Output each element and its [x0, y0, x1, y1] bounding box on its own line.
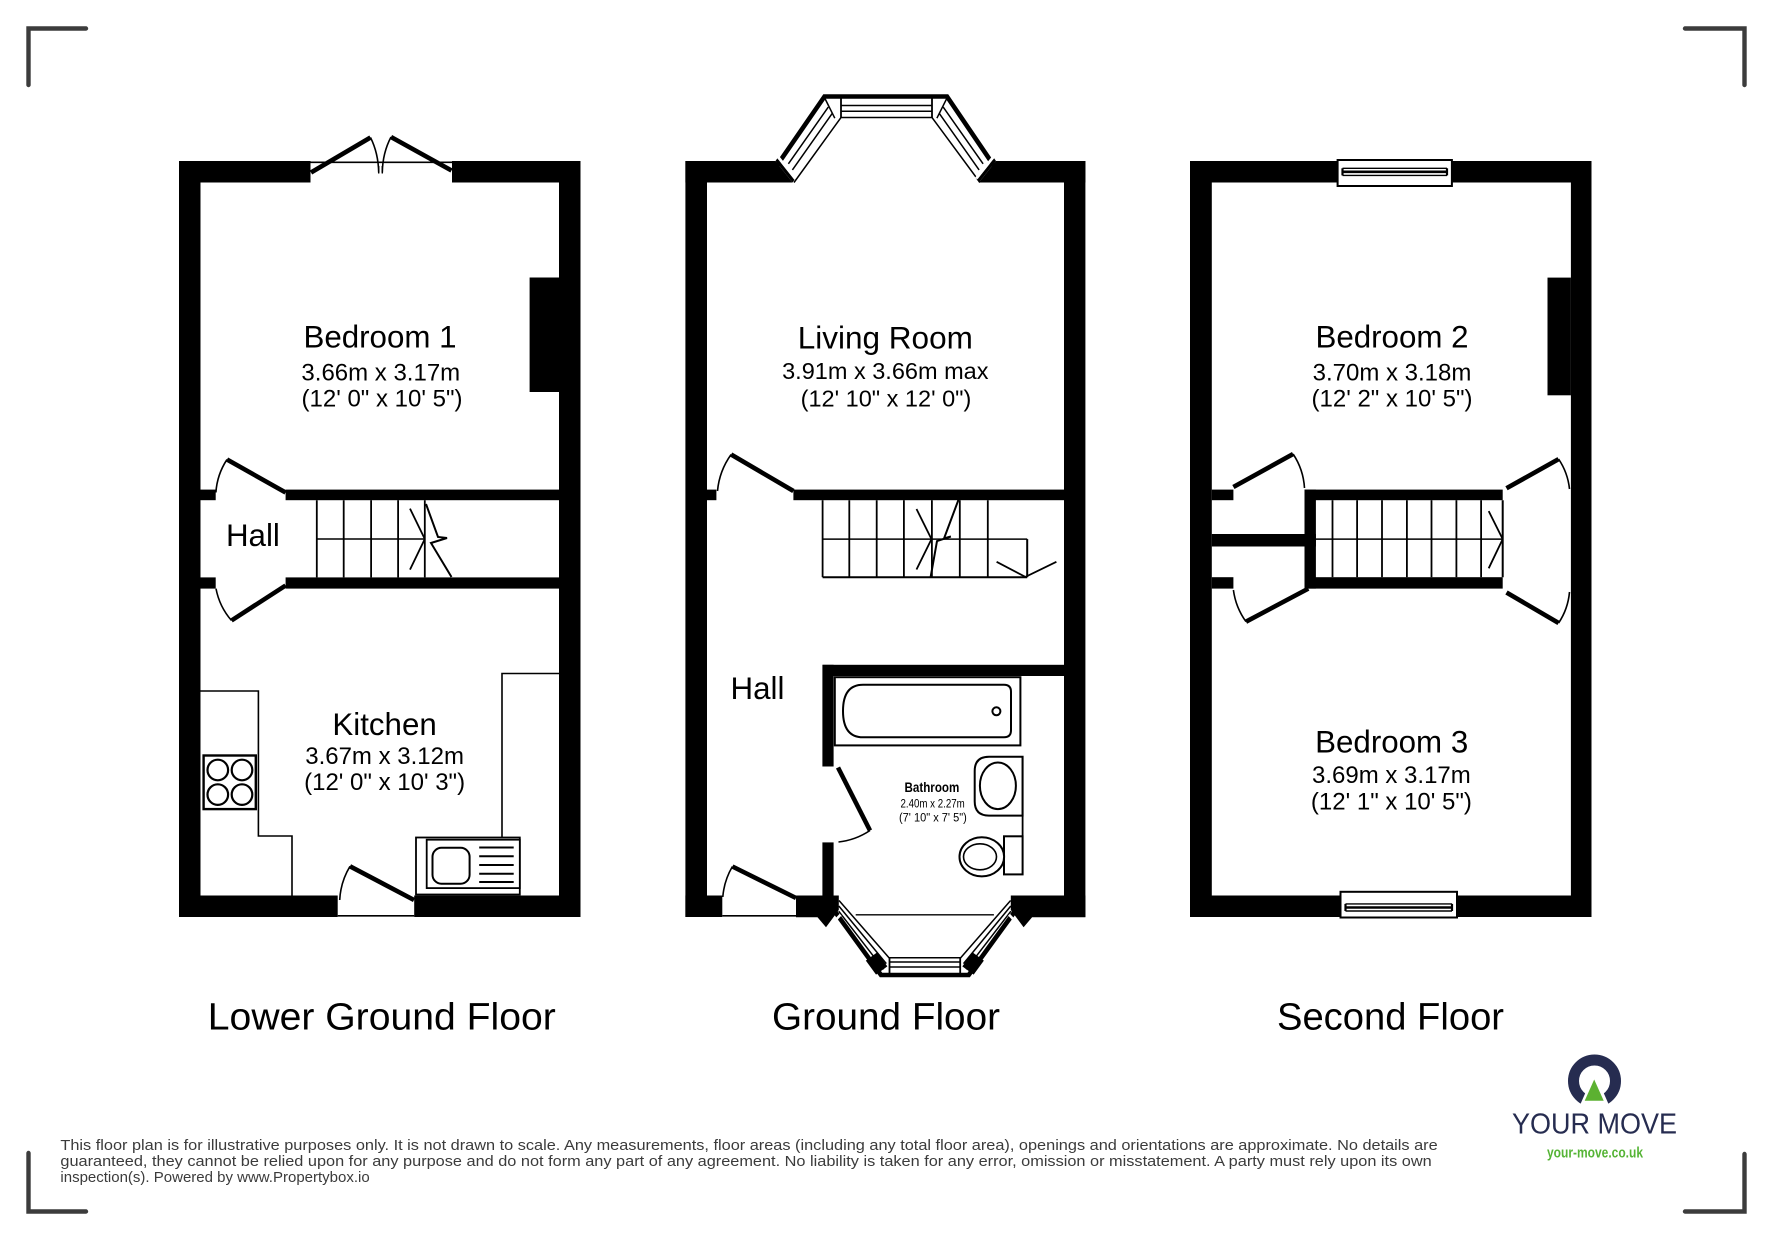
svg-text:Second Floor: Second Floor: [1277, 997, 1504, 1039]
svg-text:(12' 2" x 10' 5"): (12' 2" x 10' 5"): [1312, 386, 1473, 413]
svg-text:guaranteed, they cannot be rel: guaranteed, they cannot be relied upon f…: [60, 1154, 1431, 1170]
svg-text:(12' 0" x 10' 3"): (12' 0" x 10' 3"): [304, 769, 465, 796]
svg-text:Bedroom 1: Bedroom 1: [303, 319, 456, 354]
svg-text:3.66m x 3.17m: 3.66m x 3.17m: [301, 360, 460, 387]
svg-text:your-move.co.uk: your-move.co.uk: [1547, 1146, 1644, 1162]
svg-text:2.40m x 2.27m: 2.40m x 2.27m: [901, 798, 965, 811]
svg-text:(7' 10" x 7' 5"): (7' 10" x 7' 5"): [899, 812, 967, 824]
svg-text:(12' 10" x 12' 0"): (12' 10" x 12' 0"): [801, 385, 972, 411]
svg-text:Hall: Hall: [731, 671, 785, 706]
svg-text:3.91m x 3.66m max: 3.91m x 3.66m max: [782, 358, 989, 384]
svg-text:This floor plan is for illustr: This floor plan is for illustrative purp…: [60, 1138, 1438, 1154]
svg-text:Bathroom: Bathroom: [905, 779, 960, 795]
svg-text:Bedroom 3: Bedroom 3: [1315, 725, 1468, 760]
svg-text:inspection(s). Powered by www.: inspection(s). Powered by www.Propertybo…: [60, 1169, 369, 1186]
svg-text:3.67m x 3.12m: 3.67m x 3.12m: [305, 743, 464, 770]
svg-text:YOUR MOVE: YOUR MOVE: [1512, 1109, 1677, 1141]
svg-text:(12' 1" x 10' 5"): (12' 1" x 10' 5"): [1311, 789, 1472, 816]
svg-text:Living Room: Living Room: [798, 320, 973, 356]
svg-text:Hall: Hall: [226, 518, 280, 553]
svg-text:(12' 0" x 10' 5"): (12' 0" x 10' 5"): [302, 386, 463, 413]
svg-text:3.70m x 3.18m: 3.70m x 3.18m: [1313, 360, 1472, 387]
svg-text:Kitchen: Kitchen: [332, 707, 436, 742]
svg-text:Ground Floor: Ground Floor: [772, 997, 1000, 1039]
svg-text:Bedroom 2: Bedroom 2: [1315, 319, 1468, 354]
svg-text:3.69m x 3.17m: 3.69m x 3.17m: [1312, 762, 1471, 789]
svg-text:Lower Ground Floor: Lower Ground Floor: [208, 997, 556, 1039]
